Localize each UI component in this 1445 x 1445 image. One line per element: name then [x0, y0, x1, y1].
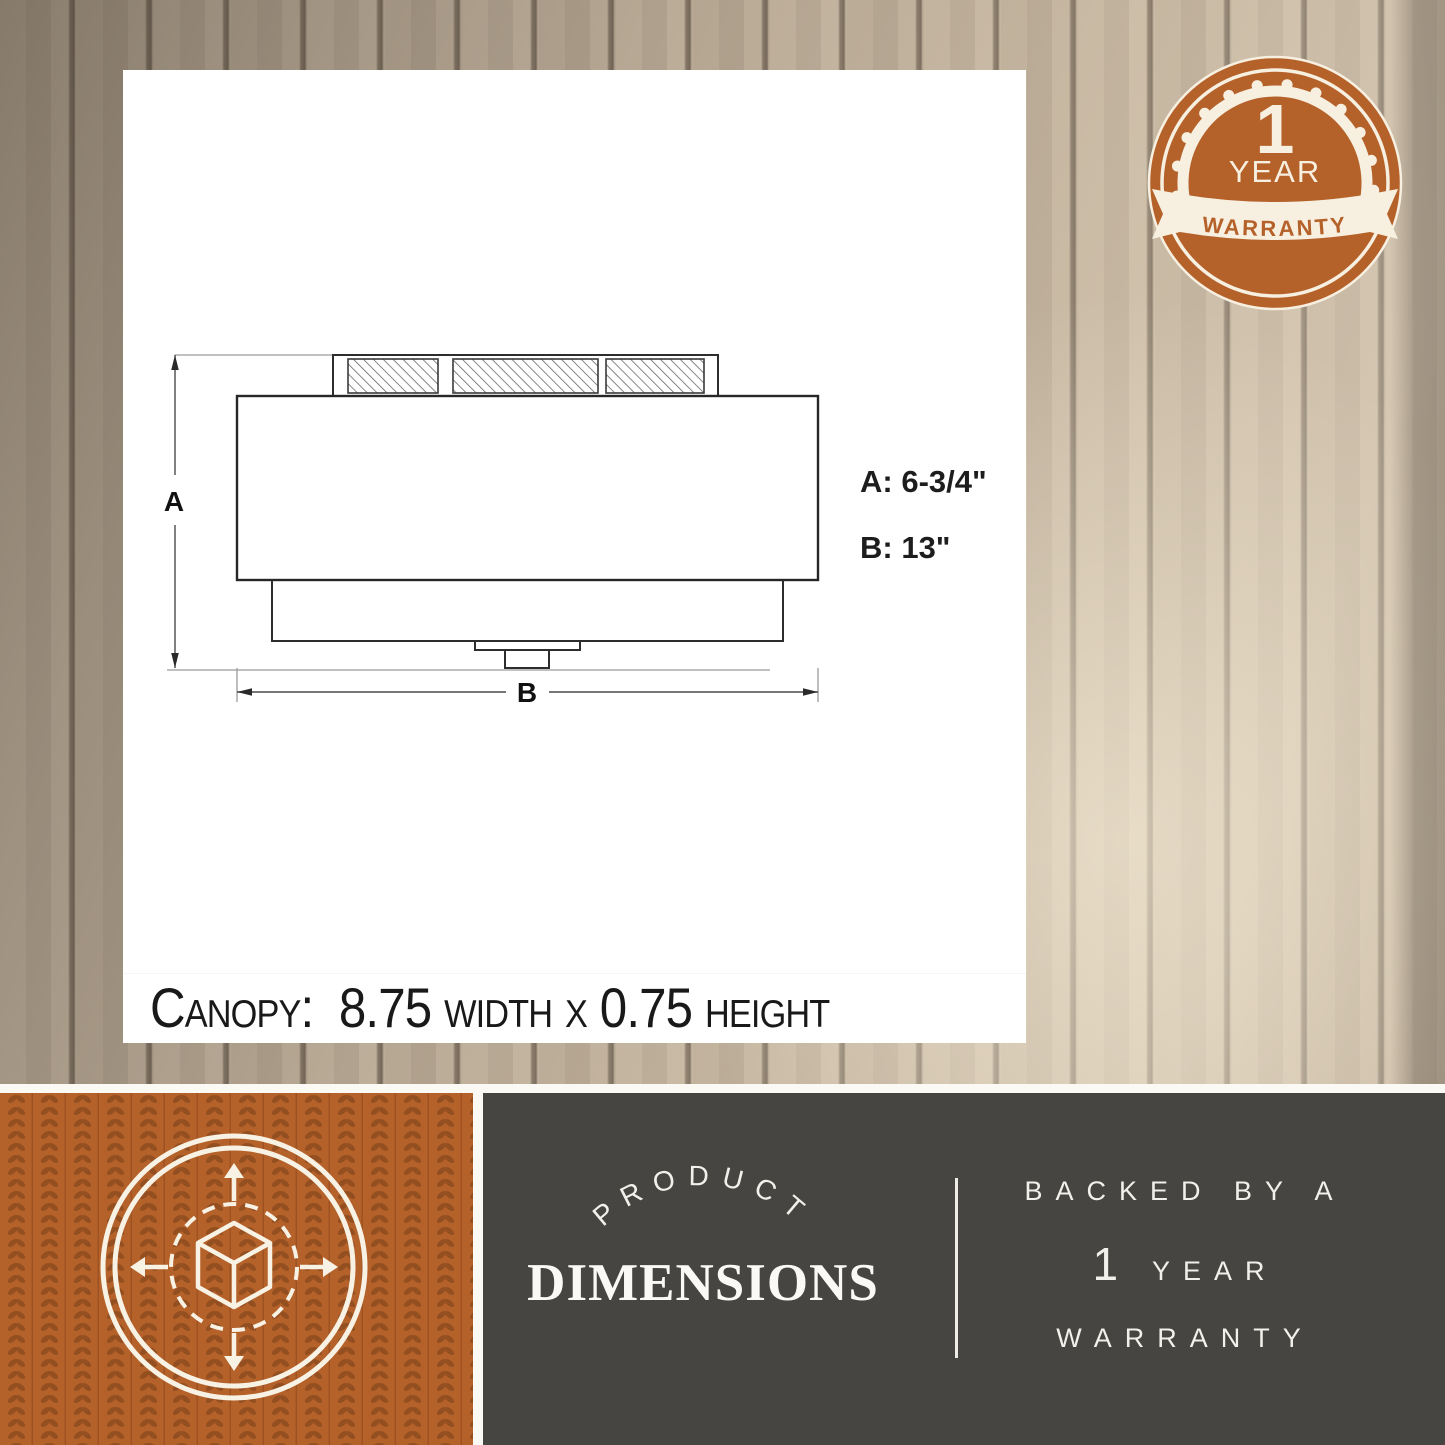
svg-text:PRODUCT: PRODUCT [587, 1160, 820, 1232]
bottom-info-bar: PRODUCT DIMENSIONS BACKED BY A 1 YEAR WA… [0, 1084, 1445, 1445]
warranty-text-block: BACKED BY A 1 YEAR WARRANTY [985, 1176, 1385, 1354]
diffuser-outline [272, 580, 783, 641]
warranty-badge: 1 YEAR WARRANTY [1147, 53, 1403, 313]
canopy-dimensions-text: Canopy: 8.75 width x 0.75 height [150, 975, 829, 1040]
finial-outline [475, 641, 580, 668]
horizontal-divider [0, 1084, 1445, 1093]
dim-a-label: A [164, 486, 184, 517]
spec-a-label: A: 6-3/4" [860, 464, 987, 499]
product-drawing-card: A B [123, 70, 1026, 1043]
warranty-year: YEAR [1152, 1256, 1278, 1287]
cube-expand-arrows-icon [103, 1136, 365, 1398]
page: A B [0, 0, 1445, 1445]
canopy-strip-divider [123, 973, 1026, 974]
dimensions-icon-tile [0, 1093, 473, 1445]
badge-ribbon-text: WARRANTY [1201, 212, 1349, 241]
dimensions-title: DIMENSIONS [483, 1253, 923, 1313]
svg-text:WARRANTY: WARRANTY [1201, 212, 1349, 241]
badge-year: YEAR [1229, 154, 1321, 189]
warranty-number: 1 [1092, 1237, 1118, 1291]
arched-product-label: PRODUCT [587, 1160, 820, 1232]
panel-vertical-divider [955, 1178, 958, 1358]
spec-b-label: B: 13" [860, 530, 951, 565]
tile-panel-divider [473, 1093, 483, 1445]
warranty-word-line: WARRANTY [985, 1323, 1385, 1354]
canopy-outline [333, 355, 718, 396]
backed-by-line: BACKED BY A [985, 1176, 1385, 1207]
one-year-line: 1 YEAR [985, 1237, 1385, 1291]
technical-drawing: A B [123, 70, 1026, 1043]
drum-shade-outline [237, 396, 818, 580]
rosette-seal-icon: 1 YEAR WARRANTY [1149, 57, 1401, 309]
product-dimensions-panel: PRODUCT DIMENSIONS BACKED BY A 1 YEAR WA… [483, 1093, 1445, 1445]
dim-b-label: B [517, 677, 537, 708]
